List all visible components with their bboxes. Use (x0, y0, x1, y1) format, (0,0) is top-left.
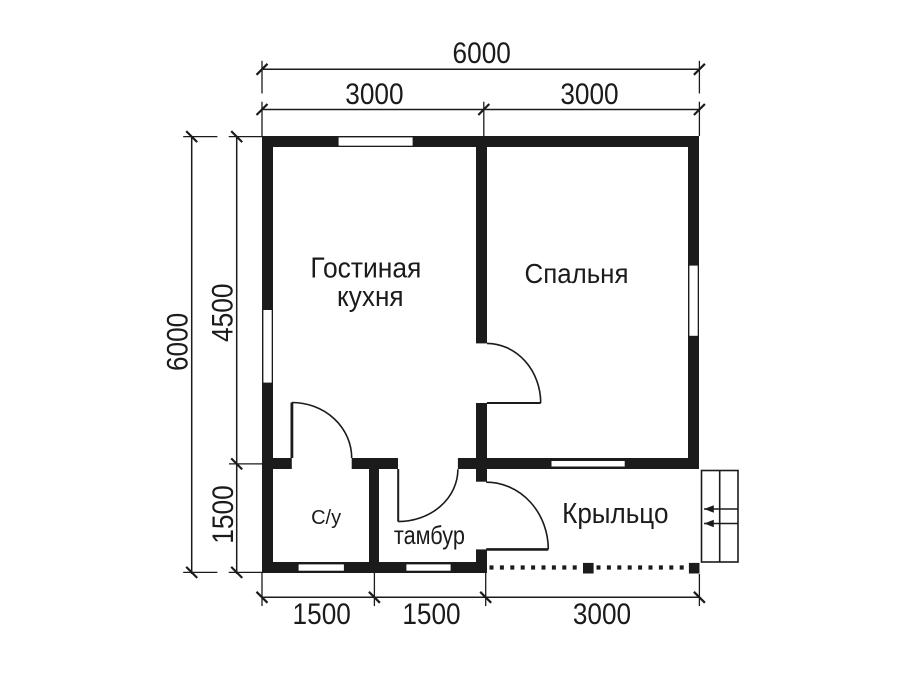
svg-text:6000: 6000 (161, 313, 194, 371)
svg-text:1500: 1500 (402, 598, 460, 631)
svg-text:Гостиная: Гостиная (310, 253, 421, 285)
svg-text:1500: 1500 (293, 598, 351, 631)
svg-text:4500: 4500 (206, 284, 239, 343)
svg-text:Спальня: Спальня (525, 258, 629, 289)
svg-text:С/у: С/у (311, 507, 341, 529)
svg-text:6000: 6000 (453, 37, 511, 70)
svg-text:3000: 3000 (573, 598, 631, 631)
svg-text:3000: 3000 (345, 78, 403, 111)
svg-text:3000: 3000 (560, 78, 618, 111)
svg-text:Крыльцо: Крыльцо (562, 498, 668, 530)
svg-text:тамбур: тамбур (394, 520, 465, 550)
svg-text:кухня: кухня (337, 281, 404, 313)
svg-text:1500: 1500 (207, 485, 240, 544)
